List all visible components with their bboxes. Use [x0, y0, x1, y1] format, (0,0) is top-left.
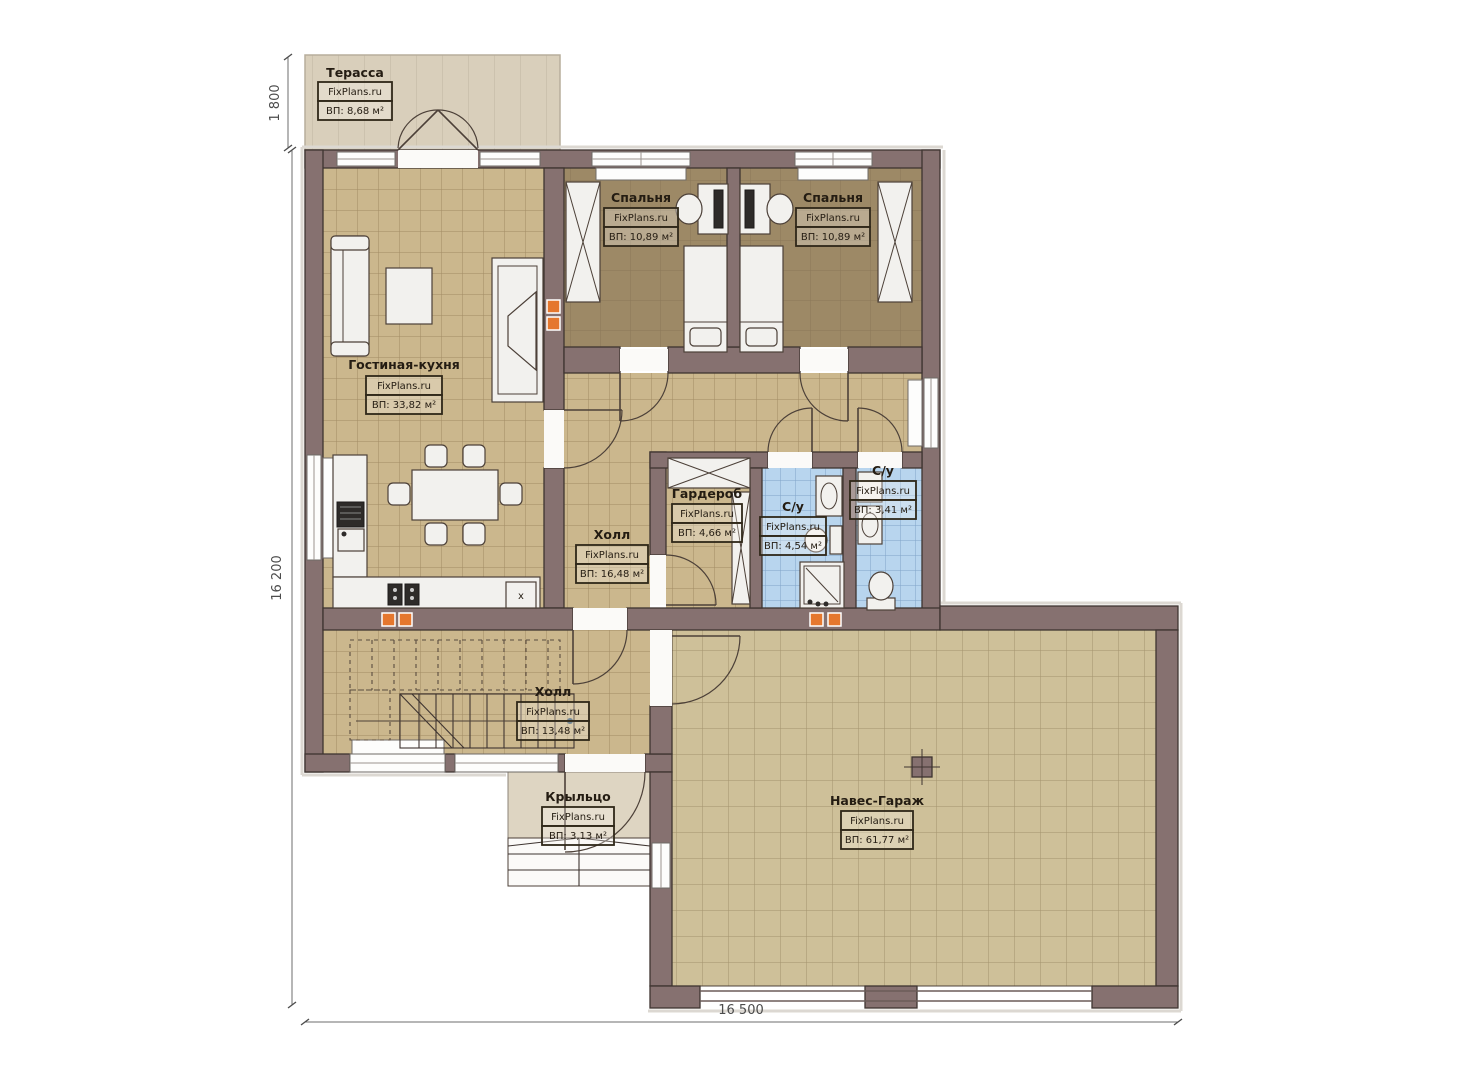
sofa	[331, 236, 369, 356]
floor-plan-page: x	[0, 0, 1473, 1080]
utility-marker	[828, 613, 841, 626]
room-area: ВП: 3,41 м²	[854, 505, 912, 516]
utility-marker	[382, 613, 395, 626]
label-bedroom2: Спальня FixPlans.ru ВП: 10,89 м²	[796, 190, 870, 246]
floor-plan-drawing: x	[0, 0, 1473, 1080]
wall-bedroom-divider	[727, 168, 740, 347]
chair	[425, 445, 447, 467]
brand-label: FixPlans.ru	[328, 87, 382, 98]
washbasin	[816, 476, 842, 516]
room-name: Холл	[594, 527, 631, 542]
room-name: Навес-Гараж	[830, 793, 925, 808]
room-name: Крыльцо	[545, 789, 611, 804]
desk-monitor	[745, 190, 754, 228]
room-name: Терасса	[326, 65, 384, 80]
desk-chair	[676, 194, 702, 224]
wardrobe-closet	[566, 182, 600, 302]
window	[795, 152, 872, 166]
kitchen-appliance-box: x	[506, 582, 536, 608]
coffee-table	[386, 268, 432, 324]
utility-marker	[810, 613, 823, 626]
wall-garage-top	[940, 606, 1178, 630]
room-area: ВП: 4,66 м²	[678, 528, 736, 539]
room-area: ВП: 13,48 м²	[521, 726, 585, 737]
wardrobe-closet	[878, 182, 912, 302]
brand-label: FixPlans.ru	[614, 213, 668, 224]
brand-label: FixPlans.ru	[680, 509, 734, 520]
oven	[388, 584, 402, 605]
garage-floor	[672, 630, 1156, 986]
dim-value: 16 500	[718, 1003, 764, 1018]
dim-value: 1 800	[268, 84, 283, 121]
brand-label: FixPlans.ru	[377, 381, 431, 392]
window	[307, 455, 321, 560]
chair	[463, 523, 485, 545]
dimension-house-side: 16 200	[270, 147, 296, 1008]
cooktop	[337, 502, 364, 527]
window-sill	[596, 168, 686, 180]
brand-label: FixPlans.ru	[526, 707, 580, 718]
kitchen-sink	[338, 529, 364, 551]
bed	[684, 246, 727, 352]
room-area: ВП: 61,77 м²	[845, 835, 909, 846]
label-terrace: Терасса FixPlans.ru ВП: 8,68 м²	[318, 65, 392, 120]
pillow	[690, 328, 721, 346]
chair	[463, 445, 485, 467]
window	[337, 152, 395, 166]
tv-unit	[492, 258, 543, 402]
window	[652, 843, 670, 888]
chair	[425, 523, 447, 545]
brand-label: FixPlans.ru	[551, 812, 605, 823]
hall-upper-floor-a	[564, 373, 922, 452]
window-sill	[908, 380, 922, 446]
toilet	[867, 572, 895, 610]
room-name: Гардероб	[672, 486, 742, 501]
room-name: Холл	[535, 684, 572, 699]
room-area: ВП: 8,68 м²	[326, 106, 384, 117]
chair	[500, 483, 522, 505]
label-garage: Навес-Гараж FixPlans.ru ВП: 61,77 м²	[830, 793, 925, 849]
room-area: ВП: 33,82 м²	[372, 400, 436, 411]
desk-chair	[767, 194, 793, 224]
dimension-terrace-depth: 1 800	[268, 54, 292, 151]
window-sill	[352, 740, 444, 754]
window	[455, 754, 558, 772]
wall-garage-right	[1156, 630, 1178, 986]
room-area: ВП: 16,48 м²	[580, 569, 644, 580]
kitchen-box-label: x	[518, 591, 524, 602]
oven	[405, 584, 419, 605]
window	[350, 754, 445, 772]
room-name: Спальня	[611, 190, 671, 205]
window-sill	[798, 168, 868, 180]
dim-value: 16 200	[270, 555, 285, 601]
room-area: ВП: 10,89 м²	[801, 232, 865, 243]
brand-label: FixPlans.ru	[806, 213, 860, 224]
room-name: Спальня	[803, 190, 863, 205]
brand-label: FixPlans.ru	[766, 522, 820, 533]
label-wardrobe: Гардероб FixPlans.ru ВП: 4,66 м²	[672, 486, 742, 542]
room-area: ВП: 4,54 м²	[764, 541, 822, 552]
window	[924, 378, 938, 448]
window	[480, 152, 540, 166]
label-porch: Крыльцо FixPlans.ru ВП: 3,13 м²	[542, 789, 614, 845]
desk-monitor	[714, 190, 723, 228]
window	[592, 152, 690, 166]
utility-marker	[399, 613, 412, 626]
room-name: С/у	[782, 499, 804, 514]
room-name: Гостиная-кухня	[348, 357, 460, 372]
room-area: ВП: 10,89 м²	[609, 232, 673, 243]
dimension-total-width: 16 500	[301, 1003, 1182, 1025]
room-name: С/у	[872, 463, 894, 478]
brand-label: FixPlans.ru	[850, 816, 904, 827]
brand-label: FixPlans.ru	[585, 550, 639, 561]
brand-label: FixPlans.ru	[856, 486, 910, 497]
chair	[388, 483, 410, 505]
bed	[740, 246, 783, 352]
utility-marker	[547, 300, 560, 313]
utility-marker	[547, 317, 560, 330]
shower	[800, 562, 844, 608]
label-bedroom1: Спальня FixPlans.ru ВП: 10,89 м²	[604, 190, 678, 246]
pillow	[746, 328, 777, 346]
room-area: ВП: 3,13 м²	[549, 831, 607, 842]
